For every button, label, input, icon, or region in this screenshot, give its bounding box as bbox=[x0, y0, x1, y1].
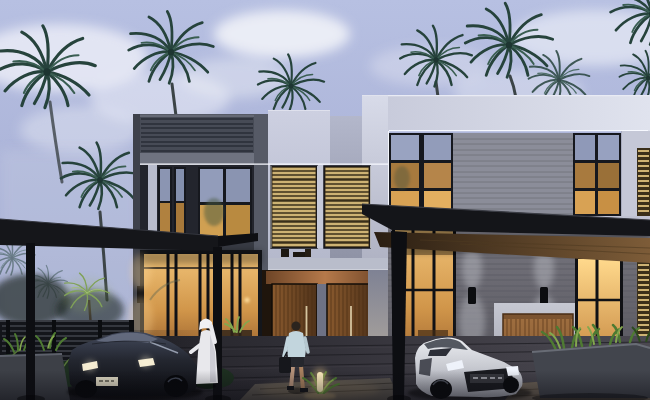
wood-louver-window bbox=[271, 166, 317, 248]
white-pillar-mid bbox=[317, 166, 324, 248]
upper-window-a bbox=[389, 133, 453, 216]
lit-soffit bbox=[266, 271, 384, 284]
glass-tree-reflection bbox=[204, 198, 224, 226]
shirt bbox=[287, 331, 306, 357]
slab-edge bbox=[268, 258, 388, 270]
render-canvas bbox=[0, 0, 650, 400]
upper-window-b bbox=[573, 133, 621, 216]
bottom-vignette bbox=[0, 370, 650, 400]
canopy-shadow bbox=[140, 250, 262, 264]
parapet bbox=[388, 95, 650, 131]
louver-sliver-upper bbox=[637, 148, 650, 216]
interior-lamp bbox=[245, 298, 250, 303]
head bbox=[292, 322, 301, 331]
architectural-render bbox=[0, 0, 650, 400]
